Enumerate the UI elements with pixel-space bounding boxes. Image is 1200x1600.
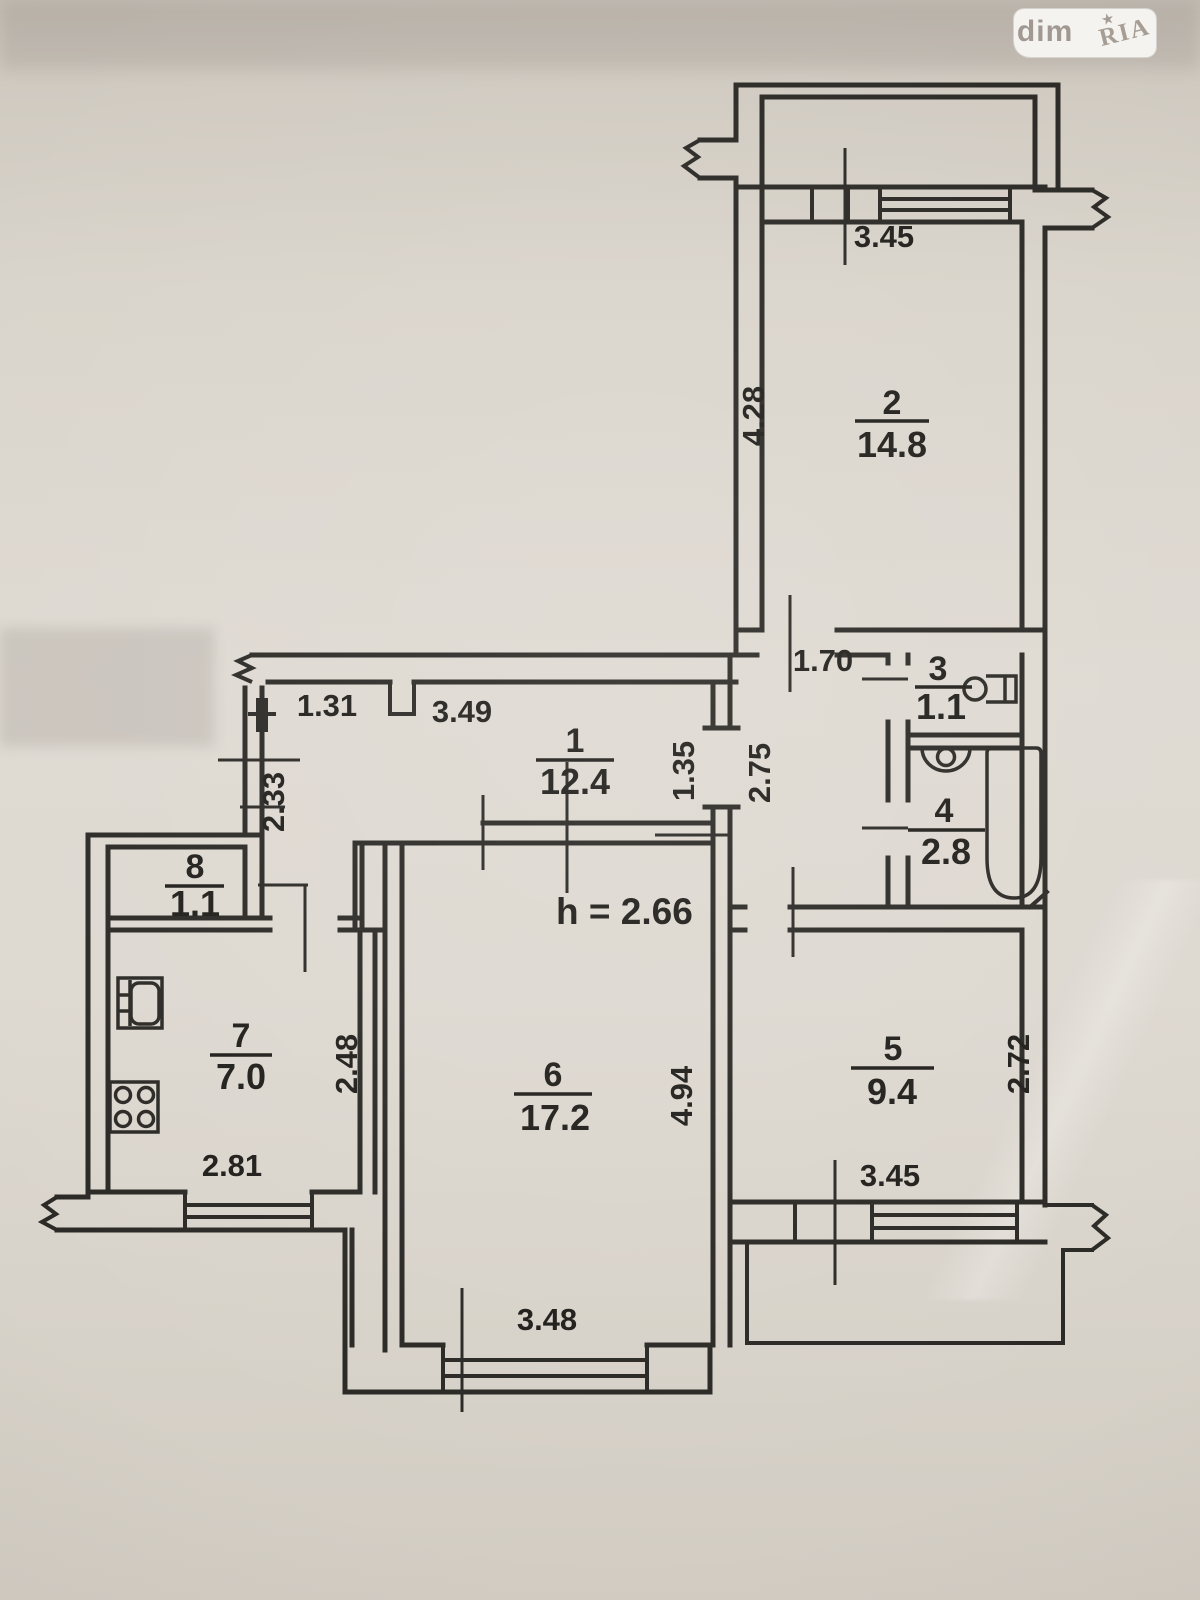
- room-label-3: 3 1.1: [915, 650, 972, 727]
- room-5-number: 5: [884, 1030, 903, 1068]
- dimension-labels: 3.45 4.28 1.70 1.31 3.49 1.35 2.75 2.33 …: [202, 219, 1036, 1337]
- room-1-area: 12.4: [540, 761, 610, 802]
- room-3-area: 1.1: [916, 686, 966, 727]
- room-label-5: 5 9.4: [851, 1030, 934, 1112]
- dim-left-233: 2.33: [256, 772, 291, 832]
- room-2-number: 2: [883, 384, 902, 422]
- window-room5-345: [795, 1202, 1017, 1242]
- room-6-area: 17.2: [520, 1097, 590, 1138]
- dim-branch-275: 2.75: [742, 743, 777, 803]
- room-2-area: 14.8: [857, 424, 927, 465]
- window-top-345: [812, 187, 1010, 222]
- floor-plan: 1 12.4 2 14.8 3 1.1 4 2.8 5: [0, 0, 1200, 1600]
- dim-room6-depth-494: 4.94: [664, 1065, 699, 1126]
- dim-hall-349: 3.49: [432, 694, 492, 729]
- room-7-number: 7: [232, 1017, 251, 1055]
- window-room6-348: [443, 1345, 647, 1392]
- bathtub: [987, 748, 1041, 898]
- room-4-area: 2.8: [921, 831, 971, 872]
- photo-background: dim ★ RIA: [0, 0, 1200, 1600]
- stove: [110, 1082, 158, 1132]
- dim-kitchen-248: 2.48: [329, 1034, 364, 1094]
- dim-room5-window-345: 3.45: [860, 1158, 920, 1193]
- dim-hall-131: 1.31: [297, 688, 357, 723]
- room-5-area: 9.4: [867, 1071, 917, 1112]
- dim-room5-depth-272: 2.72: [1001, 1034, 1036, 1094]
- wc-sink: [964, 676, 1016, 702]
- room-4-number: 4: [935, 792, 954, 830]
- room-6-number: 6: [544, 1056, 563, 1094]
- dim-top-window: 3.45: [854, 219, 914, 254]
- kitchen-sink: [118, 978, 162, 1028]
- room-7-area: 7.0: [216, 1056, 266, 1097]
- dim-door-170: 1.70: [793, 643, 853, 678]
- room-label-2: 2 14.8: [855, 384, 929, 465]
- toilet: [922, 748, 970, 771]
- room-label-7: 7 7.0: [210, 1017, 272, 1097]
- dim-room2-height: 4.28: [736, 386, 771, 446]
- room-label-1: 1 12.4: [536, 722, 614, 802]
- dim-hall-135: 1.35: [666, 741, 701, 801]
- room-label-4: 4 2.8: [908, 792, 985, 872]
- room-8-number: 8: [186, 848, 205, 886]
- room-label-6: 6 17.2: [514, 1056, 592, 1138]
- room-8-area: 1.1: [170, 883, 220, 924]
- room-label-8: 8 1.1: [165, 848, 224, 924]
- room-1-number: 1: [566, 722, 585, 760]
- window-kitchen-281: [185, 1192, 312, 1230]
- room-3-number: 3: [929, 650, 948, 688]
- dim-room6-window-348: 3.48: [517, 1302, 577, 1337]
- ceiling-height-note: h = 2.66: [556, 891, 693, 932]
- dim-kitchen-window-281: 2.81: [202, 1148, 262, 1183]
